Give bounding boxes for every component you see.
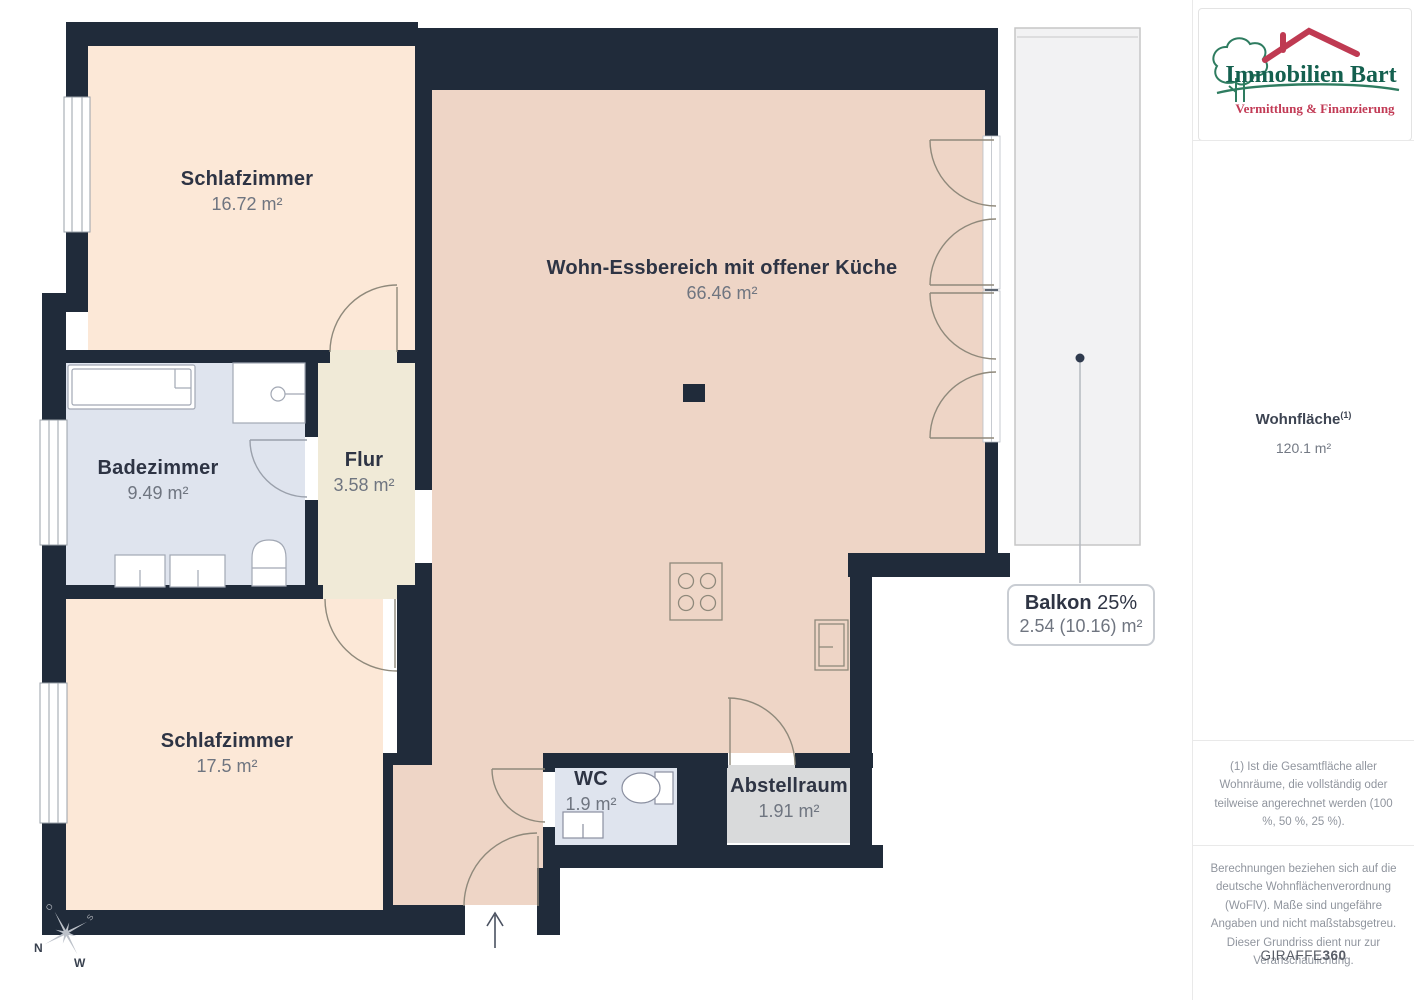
room-area: 3.58 m² — [333, 474, 394, 496]
brand-part1: GIRAFFE — [1260, 948, 1322, 963]
balcony-floor — [1015, 28, 1140, 545]
wohnflaeche-footnote-ref: (1) — [1340, 410, 1351, 420]
toilet-icon — [622, 772, 673, 804]
wall-segment — [42, 293, 88, 312]
wall-segment — [397, 350, 415, 363]
washbasin-icon — [115, 555, 165, 587]
balkon-area: 2.54 (10.16) m² — [1011, 615, 1151, 637]
window-icon — [64, 97, 90, 232]
wall-segment — [42, 910, 395, 935]
room-name: Flur — [333, 448, 394, 472]
room-area: 66.46 m² — [547, 282, 898, 304]
wall-segment — [543, 753, 728, 768]
wall-segment — [985, 440, 998, 555]
room-living-floor-a — [432, 90, 995, 553]
divider — [1193, 845, 1414, 846]
wall-segment — [42, 312, 66, 935]
wall-segment — [305, 500, 318, 599]
room-living-floor-b — [432, 553, 850, 753]
agency-logo-graphic: Immobilien Bart Vermittlung & Finanzieru… — [1203, 16, 1407, 134]
room-label-wc: WC 1.9 m² — [565, 767, 616, 815]
flur-threshold-bottom — [323, 585, 397, 599]
column — [683, 384, 705, 402]
room-area: 1.9 m² — [565, 793, 616, 815]
divider — [1193, 740, 1414, 741]
room-name: Schlafzimmer — [181, 167, 313, 191]
balkon-callout-title: Balkon 25% — [1011, 591, 1151, 615]
room-area: 1.91 m² — [730, 800, 848, 822]
wall-segment — [850, 553, 872, 858]
room-name: Schlafzimmer — [161, 729, 293, 753]
room-label-badezimmer: Badezimmer 9.49 m² — [98, 456, 219, 504]
balkon-callout: Balkon 25% 2.54 (10.16) m² — [1007, 584, 1155, 646]
room-name: Badezimmer — [98, 456, 219, 480]
washbasin-icon — [170, 555, 225, 587]
wall-segment — [677, 768, 727, 845]
balcony-door-openings — [983, 136, 1000, 442]
wohnflaeche-value: 120.1 m² — [1193, 440, 1414, 456]
wall-segment — [415, 46, 432, 490]
room-label-wohnbereich: Wohn-Essbereich mit offener Küche 66.46 … — [547, 256, 898, 304]
room-label-schlafzimmer-1: Schlafzimmer 16.72 m² — [181, 167, 313, 215]
toilet-icon — [252, 540, 286, 586]
room-area: 9.49 m² — [98, 482, 219, 504]
balkon-anchor-dot — [1076, 354, 1085, 363]
compass-w-label: W — [74, 956, 86, 970]
wall-segment — [543, 845, 883, 868]
giraffe360-brand: GIRAFFE360 — [1193, 948, 1414, 963]
balcony — [1015, 28, 1140, 545]
room-label-flur: Flur 3.58 m² — [333, 448, 394, 496]
washbasin-icon — [563, 812, 603, 838]
wall-segment — [418, 28, 998, 90]
agency-subtitle: Vermittlung & Finanzierung — [1235, 101, 1395, 116]
window-icon — [40, 420, 67, 545]
room-name: Wohn-Essbereich mit offener Küche — [547, 256, 898, 280]
wall-segment — [397, 585, 432, 755]
footnote-text: (1) Ist die Gesamtfläche aller Wohnräume… — [1209, 758, 1398, 832]
wall-segment — [66, 350, 330, 363]
bathtub-icon — [68, 365, 195, 409]
floorplan-page: N W O S Schlafzimmer 16.72 m² Wohn-Essbe… — [0, 0, 1414, 1000]
compass-n-label: N — [34, 941, 43, 955]
shower-icon — [233, 363, 305, 423]
wall-segment — [383, 905, 465, 935]
wohnflaeche-text: Wohnfläche — [1256, 411, 1341, 428]
wall-segment — [537, 868, 560, 935]
balkon-percent: 25% — [1097, 592, 1137, 614]
wall-segment — [305, 350, 318, 437]
wall-segment — [985, 90, 998, 138]
room-name: WC — [565, 767, 616, 791]
window-icon — [40, 683, 67, 823]
divider — [1193, 140, 1414, 141]
room-name: Abstellraum — [730, 774, 848, 798]
room-label-abstellraum: Abstellraum 1.91 m² — [730, 774, 848, 822]
room-area: 17.5 m² — [161, 755, 293, 777]
wall-segment — [848, 553, 1010, 577]
wohnflaeche-block: Wohnfläche(1) 120.1 m² — [1193, 410, 1414, 456]
room-label-schlafzimmer-2: Schlafzimmer 17.5 m² — [161, 729, 293, 777]
agency-logo: Immobilien Bart Vermittlung & Finanzieru… — [1198, 8, 1412, 141]
balkon-name: Balkon — [1025, 592, 1092, 614]
wohnflaeche-label: Wohnfläche(1) — [1193, 410, 1414, 428]
flur-threshold-top — [330, 350, 397, 363]
info-sidebar: Immobilien Bart Vermittlung & Finanzieru… — [1192, 0, 1414, 1000]
roof-icon — [1265, 31, 1357, 60]
room-area: 16.72 m² — [181, 193, 313, 215]
brand-part2: 360 — [1322, 948, 1346, 963]
entrance-arrow-icon — [487, 913, 503, 948]
wall-segment — [68, 22, 418, 46]
